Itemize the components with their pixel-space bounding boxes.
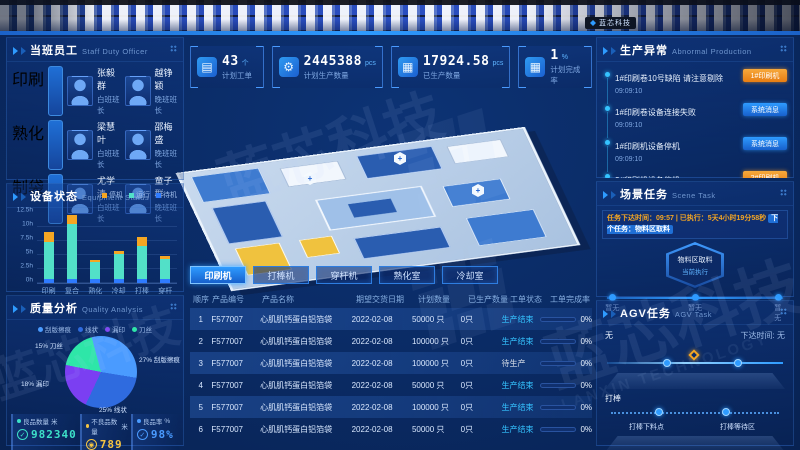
avatar (125, 130, 151, 160)
progress-bar (540, 383, 576, 388)
logo-diamond-icon (590, 20, 596, 26)
cell-product-code: F577007 (211, 337, 260, 346)
y-tick: 12.5h (17, 207, 33, 214)
agv-panel-subtitle: AGV Task (675, 310, 712, 319)
rate-text: 0% (580, 359, 592, 368)
kpi-card: ▦ 1 % 计划完成率 (518, 46, 592, 88)
tab-冷却室[interactable]: 冷却室 (442, 266, 498, 284)
chevron-right-icon (21, 305, 26, 313)
kpi-label: 已生产数量 (423, 70, 504, 81)
bar-segment (44, 232, 54, 242)
cell-product-name: 心肌肌钙蛋白铝箔袋 (260, 314, 352, 325)
pie-label-daosi: 15% 刀丝 (35, 340, 63, 350)
staff-member-card: 梁慧叶 白班班长 (67, 120, 121, 170)
stat-unit: 米 (121, 421, 128, 431)
stat-label: 良品率 (143, 416, 163, 426)
scene-task-info: 任务下达时间：09:57 | 已执行：5天4小时19分58秒 下个任务：物料区取… (602, 210, 788, 239)
chevron-right-icon (603, 310, 608, 318)
gear-icon: ⚙ (279, 57, 299, 77)
table-header-row: 顺序产品编号产品名称期望交货日期计划数量已生产数量工单状态工单完成率 (190, 290, 592, 308)
member-name: 邵梅盛 (155, 120, 179, 146)
abnormal-tag-button[interactable]: 系统消息 (743, 137, 787, 150)
cell-product-code: F577007 (211, 359, 260, 368)
avatar (67, 76, 93, 106)
abnormal-time: 09:09:10 (615, 122, 739, 129)
factory-photo-banner: 蓝芯科技 (0, 0, 800, 32)
banner-tech-border (0, 31, 800, 35)
cell-plan-qty: 50000 只 (412, 314, 461, 325)
bar-segment (67, 279, 77, 283)
stat-unit: % (164, 418, 170, 425)
stat-check-icon: ✓ (17, 429, 28, 440)
cell-produced-qty: 0只 (461, 380, 502, 391)
equipment-panel: 设备状态 Equipment Status 停机 运行 待机 0h2.5h5h7… (6, 183, 184, 292)
rate-text: 0% (580, 381, 592, 390)
table-header-cell: 工单完成率 (550, 294, 592, 305)
scene-panel-title: 场景任务 (620, 186, 668, 202)
quality-panel-header: 质量分析 Quality Analysis (7, 296, 183, 320)
hexagon-icon: 物料区取料 当前执行 (666, 242, 724, 288)
legend-swatch-icon (156, 193, 161, 198)
progress-bar (540, 317, 576, 322)
legend-item: 刀丝 (132, 324, 152, 334)
bar-column (137, 237, 147, 283)
cell-produced-qty: 0只 (461, 402, 502, 413)
rate-text: 0% (580, 403, 592, 412)
abnormal-time: 09:09:10 (615, 156, 739, 163)
legend-swatch-icon (38, 327, 43, 332)
progress-bar (540, 405, 576, 410)
avatar (67, 130, 93, 160)
cell-product-code: F577007 (211, 381, 260, 390)
progress-bar (540, 361, 576, 366)
staff-panel-subtitle: Staff Duty Officer (82, 47, 148, 56)
quality-stat: 良品数量 米 ✓ 982340 (11, 414, 77, 450)
abnormal-text: 1#印刷卷设备连接失败 (615, 108, 696, 117)
agv-progress-track (607, 355, 783, 371)
stat-value: 982340 (31, 428, 77, 441)
bar-column (44, 232, 54, 283)
member-name: 越铮颖 (155, 66, 179, 92)
cell-delivery-date: 2022-02-08 (352, 381, 412, 390)
chevron-right-icon (611, 310, 616, 318)
quality-stats: 良品数量 米 ✓ 982340 不良品数量 米 ◉ 789 良品率 % ✓ 98… (11, 414, 179, 450)
cell-status: 生产结束 (502, 336, 541, 347)
cell-completion-rate: 0% (540, 315, 592, 324)
bar-column (160, 256, 170, 283)
rate-text: 0% (580, 425, 592, 434)
cell-plan-qty: 100000 只 (412, 402, 461, 413)
bar-segment (137, 246, 147, 278)
agv-panel-header: AGV任务 AGV Task (597, 301, 793, 325)
panel-handle-icon (780, 45, 787, 52)
hex-task-name: 物料区取料 (678, 255, 713, 265)
current-task-hex: 物料区取料 当前执行 (597, 241, 793, 289)
bar-column (90, 260, 100, 284)
staff-panel-header: 当班员工 Staff Duty Officer (7, 38, 183, 62)
bar-segment (160, 259, 170, 279)
cell-product-name: 心肌肌钙蛋白铝箔袋 (260, 336, 352, 347)
cell-status: 生产结束 (502, 314, 541, 325)
task-time-text: 任务下达时间：09:57 | 已执行：5天4小时19分58秒 (607, 215, 766, 222)
logo-text: 蓝芯科技 (599, 18, 631, 28)
table-header-cell: 产品名称 (262, 294, 356, 305)
quality-panel-subtitle: Quality Analysis (82, 305, 143, 314)
equipment-legend: 停机 运行 待机 (102, 190, 177, 200)
staff-member-card: 张毅群 白班班长 (67, 66, 121, 116)
abnormal-tag-button[interactable]: 2#印刷机 (743, 171, 787, 178)
y-tick: 2.5h (20, 263, 33, 270)
cell-status: 生产结束 (502, 424, 541, 435)
abnormal-text: 1#印刷机设备停机 (615, 142, 680, 151)
staff-group: 印刷 张毅群 白班班长 越铮颖 晚班班长 (12, 66, 178, 116)
member-name: 梁慧叶 (97, 120, 121, 146)
chevron-right-icon (21, 47, 26, 55)
pie (65, 336, 137, 408)
chevron-right-icon (13, 193, 18, 201)
member-role: 白班班长 (97, 148, 121, 170)
bars (37, 213, 177, 283)
quality-panel-title: 质量分析 (30, 300, 78, 316)
staff-panel: 当班员工 Staff Duty Officer 印刷 张毅群 白班班长 越铮颖 … (6, 37, 184, 180)
bar-segment (44, 242, 54, 278)
table-row[interactable]: 6 F577007 心肌肌钙蛋白铝箔袋 2022-02-08 50000 只 0… (190, 418, 592, 440)
stat-dot-icon (86, 424, 89, 428)
member-role: 晚班班长 (155, 94, 179, 116)
agv-progress-line (607, 362, 783, 364)
quality-panel: 质量分析 Quality Analysis 刮版擦痕 线状 漏印 刀丝 15% … (6, 295, 184, 446)
legend-swatch-icon (105, 327, 110, 332)
machine-block (191, 168, 271, 203)
cell-plan-qty: 50000 只 (412, 424, 461, 435)
agv-group-label: 打棒 (605, 393, 785, 404)
dashboard-root: 蓝芯科技 蓝芯科技 蓝芯科技LANXIN TECHNOLOGY 蓝芯科技 当班员… (0, 0, 800, 450)
progress-bar (540, 427, 576, 432)
kpi-card: ▤ 43 个 计划工单 (190, 46, 264, 88)
agv-platform (605, 373, 785, 389)
machine-block (354, 227, 451, 259)
member-name: 张毅群 (97, 66, 121, 92)
pie-label-xianzhuang: 25% 线状 (99, 404, 127, 414)
cell-seq: 6 (190, 425, 211, 434)
machine-block (446, 139, 509, 164)
abnormal-panel-header: 生产异常 Abnormal Production (597, 38, 793, 62)
cell-status: 生产结束 (502, 402, 541, 413)
stat-dot-icon (137, 419, 141, 423)
panel-handle-icon (170, 303, 177, 310)
legend-swatch-icon (102, 193, 107, 198)
abnormal-panel-title: 生产异常 (620, 42, 668, 58)
scene-task-panel: 场景任务 Scene Task 任务下达时间：09:57 | 已执行：5天4小时… (596, 181, 794, 297)
kpi-unit: pcs (365, 60, 376, 67)
stat-value: 789 (100, 438, 123, 450)
bar-segment (90, 279, 100, 283)
table-row[interactable]: 3 F577007 心肌肌钙蛋白铝箔袋 2022-02-08 100000 只 … (190, 352, 592, 374)
group-tag (48, 66, 63, 116)
staff-panel-title: 当班员工 (30, 42, 78, 58)
chevron-right-icon (13, 47, 18, 55)
member-role: 白班班长 (97, 94, 121, 116)
chevron-right-icon (611, 191, 616, 199)
abnormal-tag-button[interactable]: 1#印刷机 (743, 69, 787, 82)
cell-product-name: 心肌肌钙蛋白铝箔袋 (260, 424, 352, 435)
cell-produced-qty: 0只 (461, 314, 502, 325)
group-tag (48, 120, 63, 170)
kpi-value: 43 (222, 54, 239, 69)
cell-completion-rate: 0% (540, 403, 592, 412)
agv-panel-title: AGV任务 (620, 305, 671, 321)
abnormal-tag-button[interactable]: 系统消息 (743, 103, 787, 116)
scene-panel-subtitle: Scene Task (672, 191, 716, 200)
agv-node-icon (734, 359, 742, 367)
hex-task-state: 当前执行 (682, 266, 708, 276)
kpi-row: ▤ 43 个 计划工单 ⚙ 2445388 pcs 计划生产数量 ▦ 17924… (190, 46, 592, 88)
legend-swatch-icon (129, 193, 134, 198)
bar-column (114, 251, 124, 283)
y-axis: 0h2.5h5h7.5h10h12.5h (13, 214, 35, 284)
boxes-icon: ▦ (398, 57, 418, 77)
legend-item: 漏印 (105, 324, 125, 334)
legend-swatch-icon (132, 327, 137, 332)
agv-station-label: 打棒下料点 (629, 422, 664, 432)
kpi-label: 计划工单 (222, 70, 252, 81)
plot-area (37, 214, 177, 284)
table-header-cell: 顺序 (190, 294, 212, 305)
cell-seq: 4 (190, 381, 211, 390)
panel-handle-icon (780, 308, 787, 315)
boxes-icon: ▦ (525, 57, 545, 77)
cell-seq: 1 (190, 315, 211, 324)
staff-member-card: 越铮颖 晚班班长 (125, 66, 179, 116)
cell-seq: 2 (190, 337, 211, 346)
stat-label: 良品数量 (23, 416, 49, 426)
cell-delivery-date: 2022-02-08 (352, 403, 412, 412)
quality-pie-chart: 15% 刀丝 27% 刮版擦痕 18% 漏印 25% 线状 (7, 334, 183, 412)
kpi-unit: pcs (492, 60, 503, 67)
cell-completion-rate: 0% (540, 381, 592, 390)
rate-text: 0% (580, 337, 592, 346)
bar-column (67, 215, 77, 283)
cell-delivery-date: 2022-02-08 (352, 359, 412, 368)
pie-label-louyin: 18% 漏印 (21, 378, 49, 388)
y-tick: 7.5h (20, 235, 33, 242)
cell-produced-qty: 0只 (461, 424, 502, 435)
stat-dot-icon (17, 419, 21, 423)
chevron-right-icon (21, 193, 26, 201)
cell-plan-qty: 100000 只 (412, 336, 461, 347)
cell-completion-rate: 0% (540, 425, 592, 434)
panel-handle-icon (170, 45, 177, 52)
table-row[interactable]: 5 F577007 心肌肌钙蛋白铝箔袋 2022-02-08 100000 只 … (190, 396, 592, 418)
table-header-cell: 期望交货日期 (356, 294, 418, 305)
abnormal-item: 1#印刷卷10号缺陷 请注意剔除 09:09:10 1#印刷机 (601, 66, 787, 100)
cell-produced-qty: 0只 (461, 336, 502, 347)
tab-打棒机[interactable]: 打棒机 (253, 266, 309, 284)
abnormal-time: 09:09:10 (615, 88, 739, 95)
bar-segment (90, 262, 100, 279)
cell-seq: 3 (190, 359, 211, 368)
kpi-label: 计划生产数量 (304, 70, 376, 81)
y-tick: 5h (26, 249, 33, 256)
factory-3d-view: + + + (186, 88, 596, 264)
abnormal-panel: 生产异常 Abnormal Production 1#印刷卷10号缺陷 请注意剔… (596, 37, 794, 178)
table-header-cell: 工单状态 (510, 294, 550, 305)
legend-item: 待机 (156, 190, 177, 200)
cell-product-name: 心肌肌钙蛋白铝箔袋 (260, 358, 352, 369)
bar-segment (137, 279, 147, 283)
abnormal-item: 1#印刷卷设备连接失败 09:09:10 系统消息 (601, 100, 787, 134)
cell-completion-rate: 0% (540, 359, 592, 368)
cell-plan-qty: 100000 只 (412, 358, 461, 369)
kpi-card: ⚙ 2445388 pcs 计划生产数量 (272, 46, 383, 88)
equipment-panel-title: 设备状态 (30, 188, 78, 204)
table-header-cell: 产品编号 (212, 294, 262, 305)
kpi-label: 计划完成率 (550, 64, 585, 86)
bar-segment (114, 254, 124, 278)
staff-group: 熟化 梁慧叶 白班班长 邵梅盛 晚班班长 (12, 120, 178, 170)
cell-product-name: 心肌肌钙蛋白铝箔袋 (260, 402, 352, 413)
tab-穿杆机[interactable]: 穿杆机 (316, 266, 372, 284)
kpi-value: 1 (550, 48, 558, 63)
bar-segment (114, 279, 124, 283)
cell-produced-qty: 0只 (461, 358, 502, 369)
rate-text: 0% (580, 315, 592, 324)
bar-segment (137, 237, 147, 247)
quality-stat: 不良品数量 米 ◉ 789 (80, 414, 128, 450)
cell-product-code: F577007 (211, 403, 260, 412)
table-row[interactable]: 1 F577007 心肌肌钙蛋白铝箔袋 2022-02-08 50000 只 0… (190, 308, 592, 330)
legend-item: 运行 (129, 190, 150, 200)
station-node-icon (655, 408, 663, 416)
stat-unit: 米 (51, 416, 58, 426)
cell-completion-rate: 0% (540, 337, 592, 346)
table-header-cell: 计划数量 (418, 294, 468, 305)
avatar (125, 76, 151, 106)
agv-node-icon (663, 359, 671, 367)
company-logo: 蓝芯科技 (585, 17, 636, 29)
table-header-cell: 已生产数量 (468, 294, 510, 305)
bar-segment (67, 224, 77, 279)
bar-segment (160, 279, 170, 283)
abnormal-item: 1#印刷机设备停机 09:09:10 系统消息 (601, 134, 787, 168)
machine-block (212, 201, 283, 244)
machine-tabs: 印刷机打棒机穿杆机熟化室冷却室 (190, 266, 592, 284)
quality-stat: 良品率 % ✓ 98% (131, 414, 179, 450)
cell-status: 待生产 (502, 358, 541, 369)
agv-stations: 打棒下料点打棒等待区 (611, 422, 779, 432)
stat-value: 98% (151, 428, 174, 441)
table-row[interactable]: 4 F577007 心肌肌钙蛋白铝箔袋 2022-02-08 50000 只 0… (190, 374, 592, 396)
chevron-right-icon (603, 47, 608, 55)
chevron-right-icon (603, 191, 608, 199)
cell-plan-qty: 50000 只 (412, 380, 461, 391)
bar-segment (67, 215, 77, 223)
panel-handle-icon (780, 189, 787, 196)
pie-label-guaban: 27% 刮版擦痕 (139, 354, 180, 364)
y-tick: 0h (26, 277, 33, 284)
kpi-card: ▦ 17924.58 pcs 已生产数量 (391, 46, 511, 88)
legend-swatch-icon (78, 327, 83, 332)
tab-印刷机[interactable]: 印刷机 (190, 266, 246, 284)
orders-table: 顺序产品编号产品名称期望交货日期计划数量已生产数量工单状态工单完成率 1 F57… (190, 290, 592, 446)
abnormal-text: 2#印刷机设备停机 (615, 176, 680, 178)
cell-status: 生产结束 (502, 380, 541, 391)
cell-delivery-date: 2022-02-08 (352, 425, 412, 434)
equipment-bar-chart: 0h2.5h5h7.5h10h12.5h 印刷复合熟化冷却打棒穿杆 (13, 214, 177, 300)
machine-block (466, 209, 547, 246)
agv-issue-time: 下达时间: 无 (741, 330, 785, 341)
stat-label: 不良品数量 (91, 416, 119, 436)
pallet-block (299, 236, 340, 258)
legend-item: 停机 (102, 190, 123, 200)
agv-marker-icon (688, 349, 699, 360)
cell-product-code: F577007 (211, 425, 260, 434)
member-role: 晚班班长 (155, 148, 179, 170)
kpi-unit: % (562, 54, 568, 61)
abnormal-item: 2#印刷机设备停机 08:09:10 2#印刷机 (601, 168, 787, 178)
agv-station-label: 打棒等待区 (720, 422, 755, 432)
abnormal-list: 1#印刷卷10号缺陷 请注意剔除 09:09:10 1#印刷机 1#印刷卷设备连… (597, 62, 793, 178)
agv-route-dotted-line (611, 412, 779, 422)
tab-熟化室[interactable]: 熟化室 (379, 266, 435, 284)
cell-product-code: F577007 (211, 315, 260, 324)
table-body: 1 F577007 心肌肌钙蛋白铝箔袋 2022-02-08 50000 只 0… (190, 308, 592, 440)
kpi-value: 17924.58 (423, 54, 490, 69)
kpi-value: 2445388 (304, 54, 362, 69)
bar-segment (44, 279, 54, 283)
legend-item: 线状 (78, 324, 98, 334)
abnormal-panel-subtitle: Abnormal Production (672, 47, 752, 56)
agv-platform (605, 436, 785, 450)
y-tick: 10h (22, 221, 33, 228)
chevron-right-icon (611, 47, 616, 55)
stat-check-icon: ✓ (137, 429, 148, 440)
agv-panel: AGV任务 AGV Task 无 下达时间: 无 打棒 打棒下料点打棒等待区 (596, 300, 794, 446)
cell-seq: 5 (190, 403, 211, 412)
clipboard-icon: ▤ (197, 57, 217, 77)
cell-product-name: 心肌肌钙蛋白铝箔袋 (260, 380, 352, 391)
progress-bar (540, 339, 576, 344)
legend-item: 刮版擦痕 (38, 324, 71, 334)
scene-panel-header: 场景任务 Scene Task (597, 182, 793, 206)
quality-legend: 刮版擦痕 线状 漏印 刀丝 (7, 324, 183, 334)
cell-delivery-date: 2022-02-08 (352, 315, 412, 324)
kpi-unit: 个 (242, 58, 249, 68)
abnormal-text: 1#印刷卷10号缺陷 请注意剔除 (615, 74, 723, 83)
agv-current-task: 无 (605, 330, 613, 341)
stat-check-icon: ◉ (86, 439, 97, 450)
station-node-icon (722, 408, 730, 416)
table-row[interactable]: 2 F577007 心肌肌钙蛋白铝箔袋 2022-02-08 100000 只 … (190, 330, 592, 352)
cell-delivery-date: 2022-02-08 (352, 337, 412, 346)
chevron-right-icon (13, 305, 18, 313)
staff-member-card: 邵梅盛 晚班班长 (125, 120, 179, 170)
